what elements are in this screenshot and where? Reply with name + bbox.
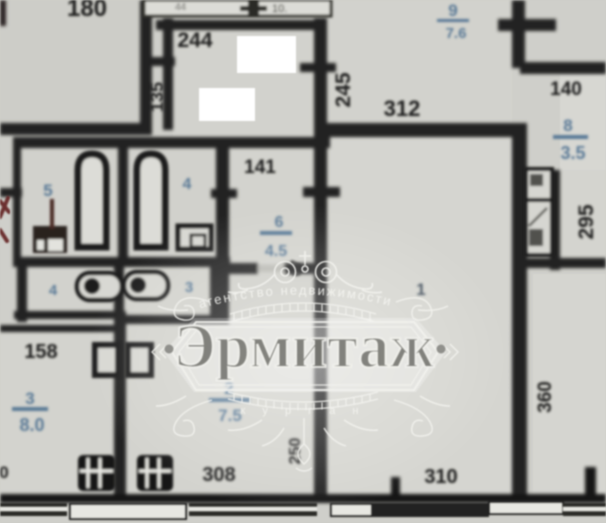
svg-text:312: 312 [384,96,421,121]
svg-text:7.6: 7.6 [446,25,467,42]
svg-text:180: 180 [67,0,107,22]
svg-text:141: 141 [244,157,276,178]
svg-text:8.0: 8.0 [19,415,44,435]
svg-text:8: 8 [563,116,572,135]
svg-text:Эрмитаж: Эрмитаж [174,313,435,381]
svg-text:295: 295 [575,204,598,239]
svg-text:44: 44 [175,2,187,13]
svg-text:3.5: 3.5 [560,143,585,163]
svg-text:360: 360 [535,381,556,413]
svg-text:244: 244 [177,29,212,52]
svg-text:4: 4 [183,176,192,193]
svg-text:158: 158 [24,341,57,363]
svg-text:10.: 10. [272,3,287,15]
svg-text:4: 4 [49,282,58,299]
svg-text:9: 9 [448,1,457,20]
svg-text:3: 3 [25,389,34,408]
svg-text:к у р г а н: к у р г а н [241,405,366,417]
svg-text:5: 5 [43,181,52,200]
svg-text:0: 0 [0,463,9,482]
svg-text:245: 245 [332,72,355,107]
svg-text:135: 135 [147,82,167,112]
svg-text:140: 140 [550,79,582,100]
